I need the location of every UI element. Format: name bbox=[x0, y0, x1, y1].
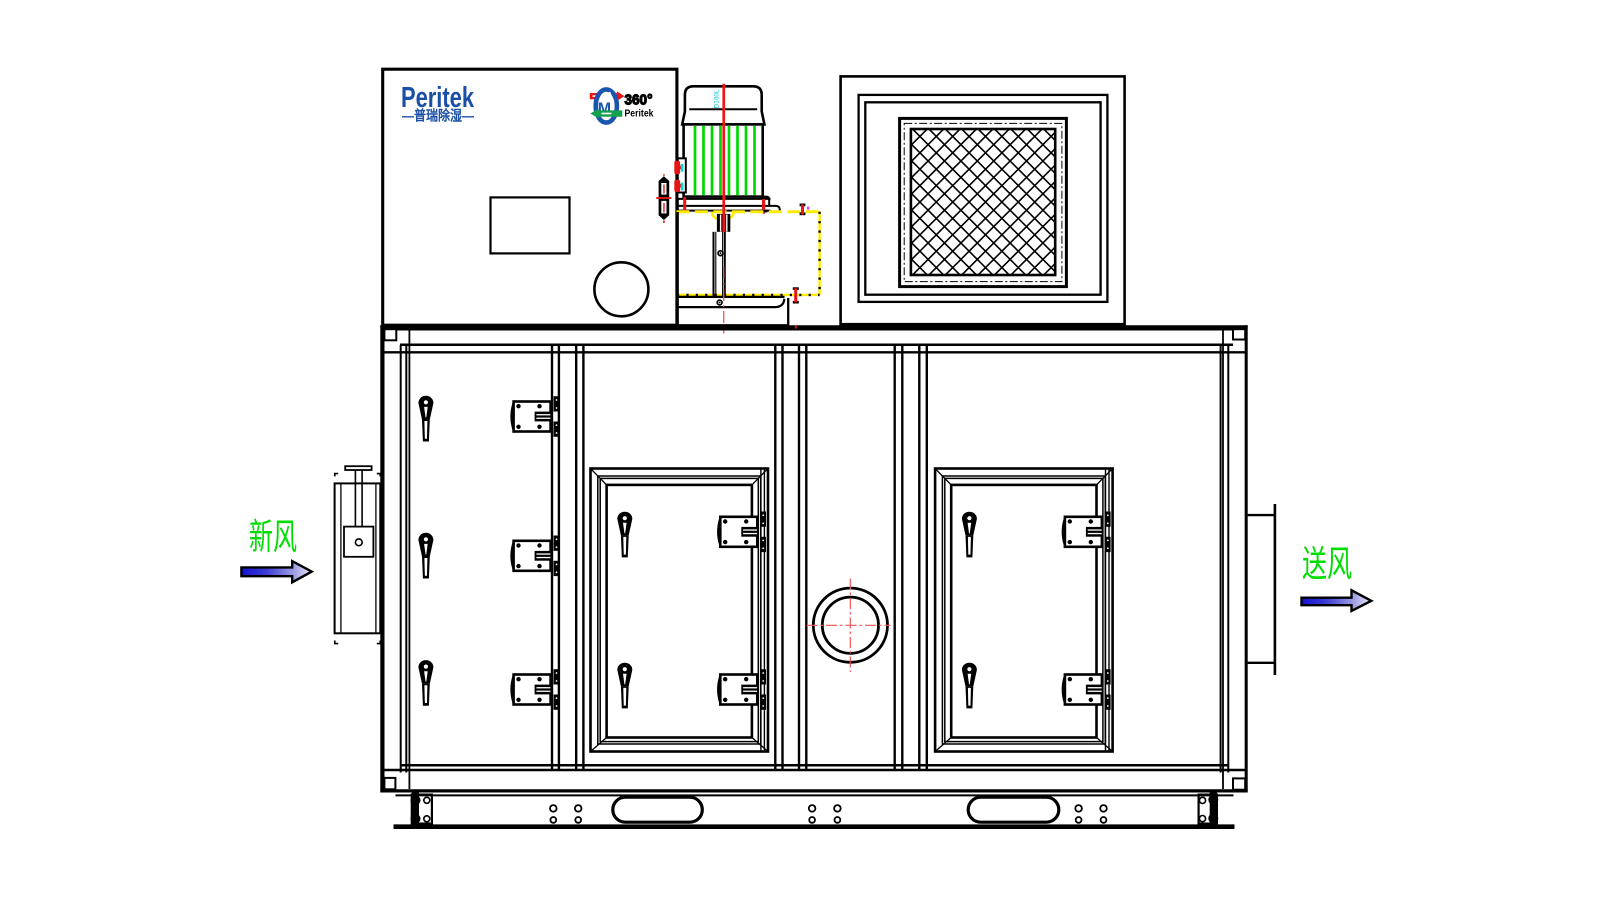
svg-text:新风: 新风 bbox=[249, 516, 297, 557]
svg-text:—普瑞除湿—: —普瑞除湿— bbox=[402, 108, 474, 124]
svg-text:360°: 360° bbox=[625, 92, 653, 109]
svg-text:Peritek: Peritek bbox=[625, 108, 654, 120]
svg-text:送风: 送风 bbox=[1302, 543, 1352, 584]
svg-text:D100L: D100L bbox=[714, 89, 721, 109]
